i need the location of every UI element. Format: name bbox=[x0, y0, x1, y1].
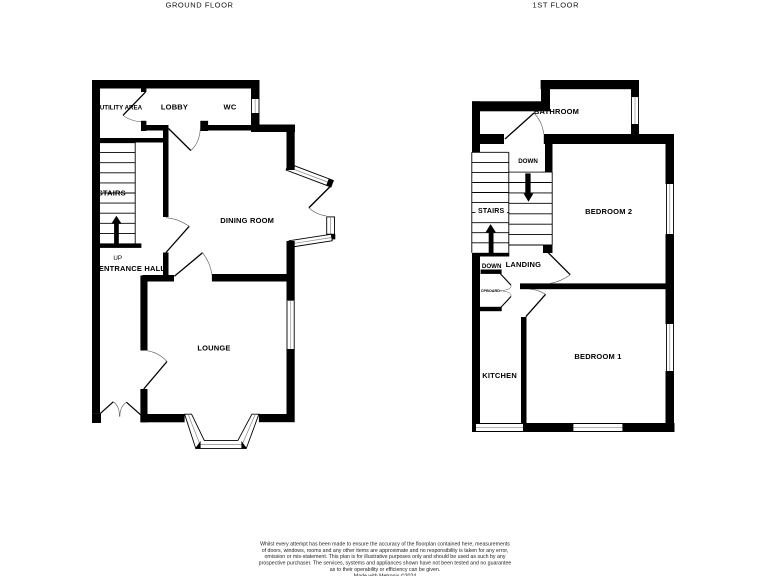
svg-text:GROUND FLOOR: GROUND FLOOR bbox=[166, 1, 234, 10]
svg-text:DOWN: DOWN bbox=[482, 263, 502, 270]
svg-text:KITCHEN: KITCHEN bbox=[482, 371, 517, 380]
svg-text:BEDROOM 1: BEDROOM 1 bbox=[574, 352, 621, 361]
svg-text:as to their operability or eff: as to their operability or efficiency ca… bbox=[330, 567, 441, 573]
svg-text:UP: UP bbox=[113, 255, 122, 262]
svg-text:DOWN: DOWN bbox=[518, 158, 538, 165]
svg-text:STAIRS: STAIRS bbox=[98, 189, 126, 198]
svg-text:BEDROOM 2: BEDROOM 2 bbox=[585, 207, 632, 216]
svg-text:of doors, windows, rooms and a: of doors, windows, rooms and any other i… bbox=[262, 548, 509, 554]
svg-text:LOUNGE: LOUNGE bbox=[197, 344, 230, 353]
svg-text:ENTRANCE HALL: ENTRANCE HALL bbox=[99, 264, 166, 273]
svg-text:CPBOARD: CPBOARD bbox=[481, 289, 500, 293]
svg-text:UTILITY AREA: UTILITY AREA bbox=[100, 105, 143, 112]
svg-text:LANDING: LANDING bbox=[506, 260, 542, 269]
svg-text:WC: WC bbox=[224, 103, 237, 112]
svg-text:omission or mis-statement. Thi: omission or mis-statement. This plan is … bbox=[265, 554, 506, 560]
svg-text:DINING ROOM: DINING ROOM bbox=[220, 216, 274, 225]
svg-text:1ST FLOOR: 1ST FLOOR bbox=[533, 1, 580, 10]
svg-text:LOBBY: LOBBY bbox=[161, 103, 188, 112]
svg-text:prospective purchaser. The ser: prospective purchaser. The services, sys… bbox=[259, 561, 512, 567]
svg-text:Made with Metropix ©2024: Made with Metropix ©2024 bbox=[354, 572, 417, 576]
svg-text:BATHROOM: BATHROOM bbox=[534, 107, 579, 116]
svg-text:Whilst every attempt has been: Whilst every attempt has been made to en… bbox=[260, 541, 510, 547]
svg-text:STAIRS: STAIRS bbox=[478, 208, 504, 215]
